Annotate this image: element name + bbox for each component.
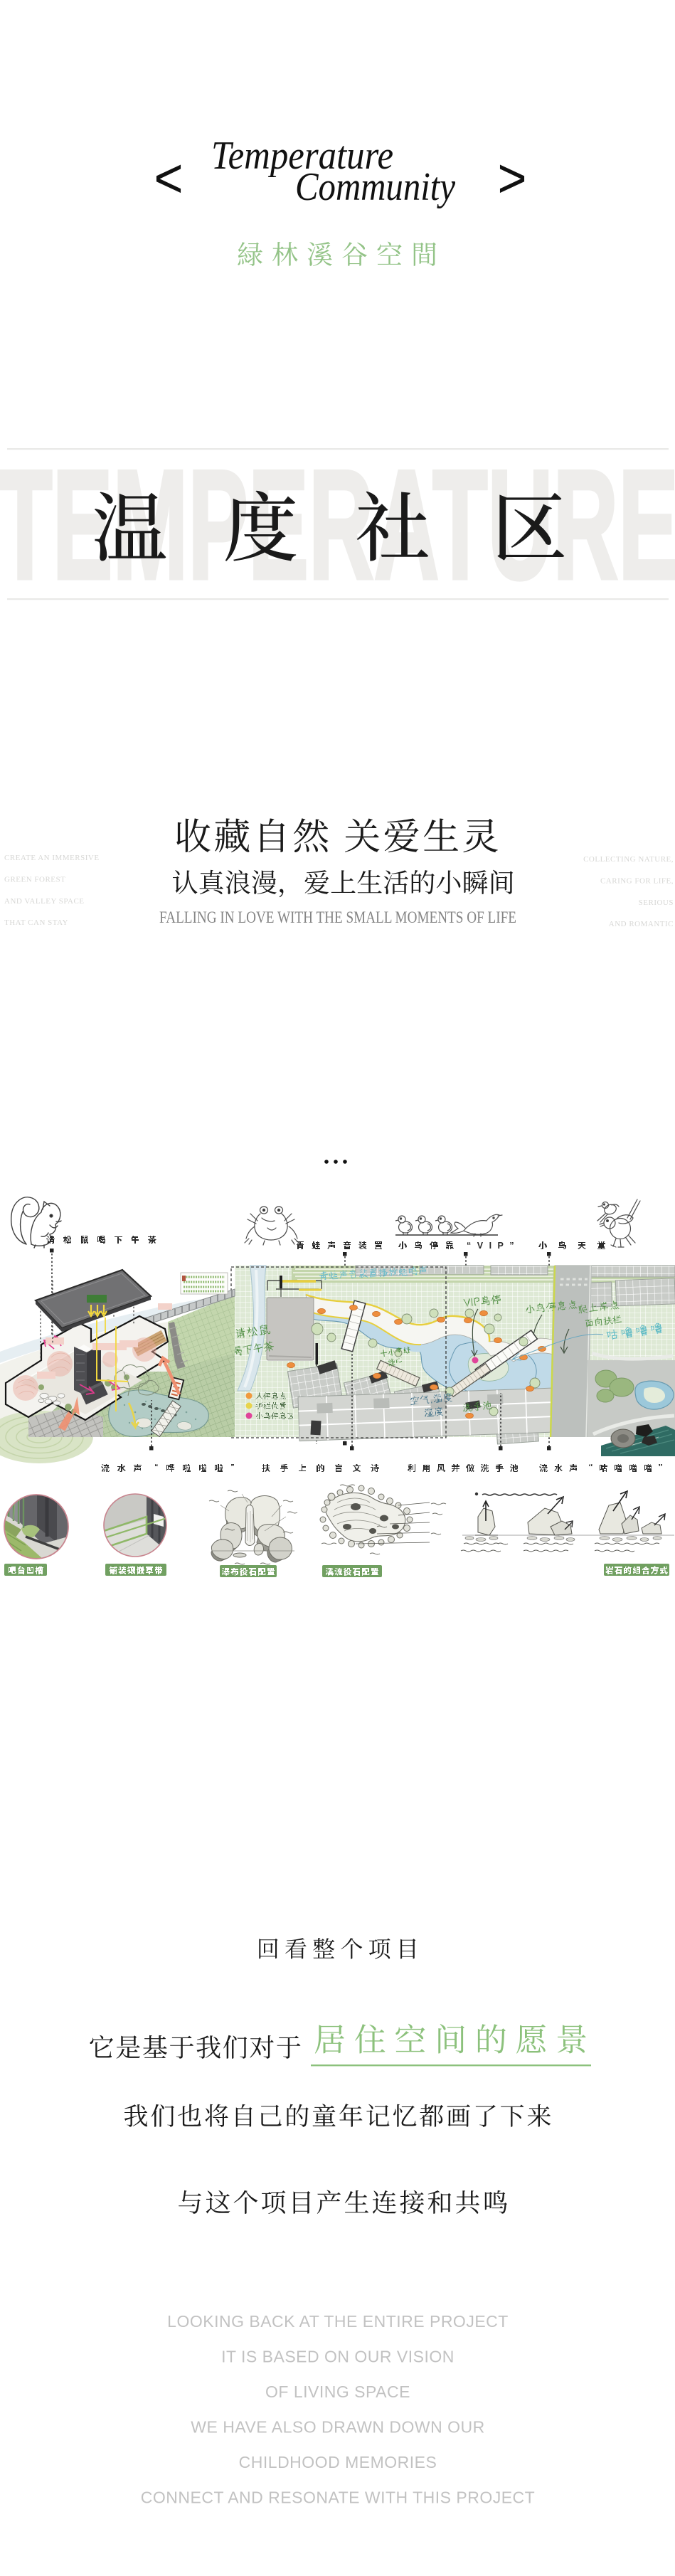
svg-text:COLLECTING NATURE,: COLLECTING NATURE, (583, 855, 674, 864)
svg-text:>: > (497, 147, 526, 209)
svg-text:<: < (154, 147, 183, 209)
svg-text:FALLING IN LOVE WITH THE SMALL: FALLING IN LOVE WITH THE SMALL MOMENTS O… (159, 908, 516, 926)
svg-text:IT IS BASED ON OUR VISION: IT IS BASED ON OUR VISION (221, 2348, 455, 2366)
svg-text:WE HAVE ALSO DRAWN DOWN OUR: WE HAVE ALSO DRAWN DOWN OUR (191, 2418, 484, 2437)
svg-text:CHILDHOOD MEMORIES: CHILDHOOD MEMORIES (239, 2453, 437, 2471)
svg-text:THAT CAN STAY: THAT CAN STAY (4, 918, 68, 927)
svg-text:CONNECT AND RESONATE WITH THIS: CONNECT AND RESONATE WITH THIS PROJECT (141, 2488, 535, 2507)
svg-text:AND ROMANTIC: AND ROMANTIC (609, 920, 674, 928)
svg-text:AND VALLEY SPACE: AND VALLEY SPACE (4, 897, 85, 906)
svg-text:CREATE AN IMMERSIVE: CREATE AN IMMERSIVE (4, 854, 100, 862)
svg-text:OF LIVING SPACE: OF LIVING SPACE (265, 2382, 410, 2401)
svg-text:Community: Community (295, 165, 455, 209)
svg-text:TEMPERATURE: TEMPERATURE (0, 438, 675, 612)
svg-text:“VIP”: “VIP” (467, 1241, 520, 1251)
svg-text:CARING FOR LIFE,: CARING FOR LIFE, (600, 876, 674, 885)
svg-text:GREEN FOREST: GREEN FOREST (4, 875, 65, 884)
svg-text:LOOKING BACK AT THE ENTIRE PRO: LOOKING BACK AT THE ENTIRE PROJECT (167, 2312, 509, 2331)
svg-text:SERIOUS: SERIOUS (639, 899, 674, 907)
